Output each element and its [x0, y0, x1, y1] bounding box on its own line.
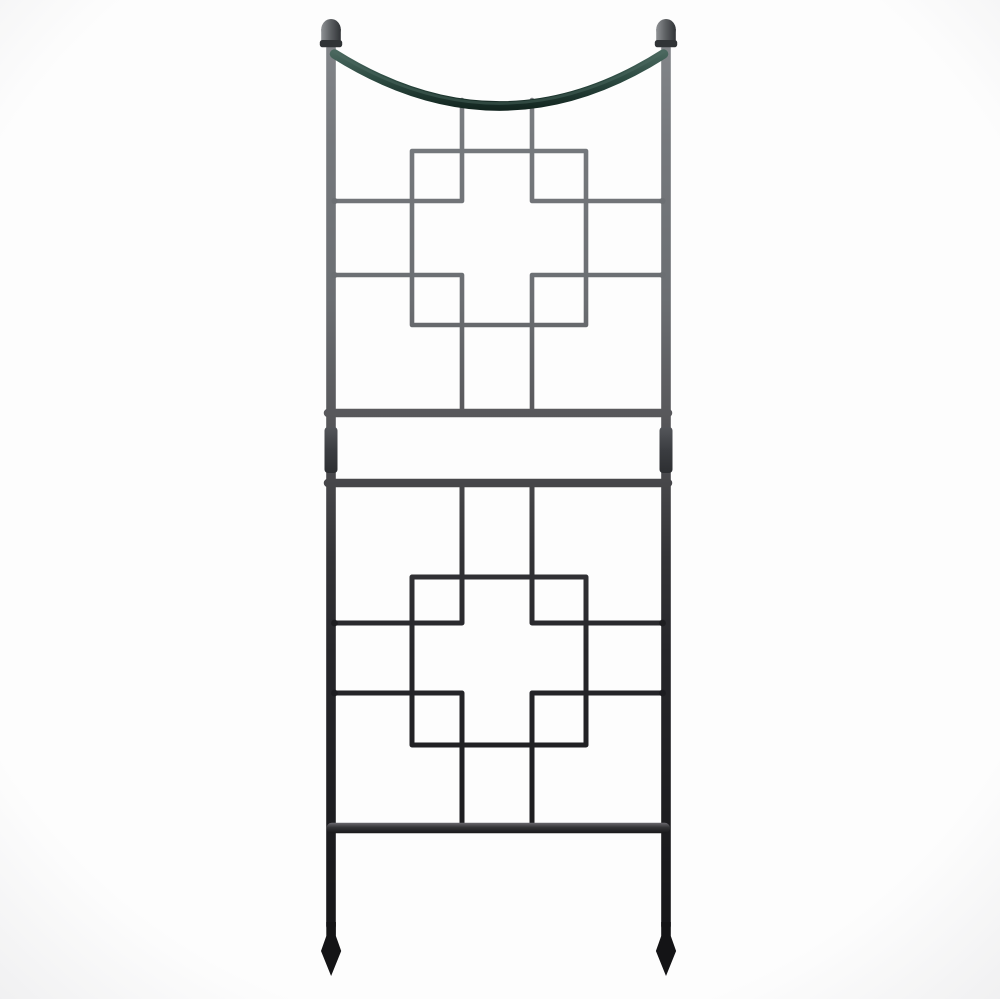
weld-lower-left-2	[331, 690, 338, 697]
weld-lower-right-1	[659, 620, 666, 627]
left-finial-dome	[321, 19, 341, 40]
left-post-coupler	[325, 427, 338, 473]
weld-lower-left-1	[331, 620, 338, 627]
left-finial-collar	[320, 40, 342, 47]
right-finial	[655, 19, 677, 47]
left-finial	[320, 19, 342, 47]
weld-upper-right-1	[659, 198, 665, 204]
weld-upper-right-2	[659, 272, 665, 278]
photo-stage: Graphite wrought-iron garden trellis pho…	[0, 0, 1000, 999]
right-post-coupler	[660, 427, 673, 473]
right-finial-dome	[656, 19, 676, 40]
weld-upper-left-2	[331, 272, 337, 278]
product-photo: Graphite wrought-iron garden trellis pho…	[0, 0, 1000, 999]
bottom-rail	[327, 823, 671, 833]
right-finial-collar	[655, 40, 677, 47]
trellis-illustration	[0, 0, 1000, 999]
weld-lower-right-2	[659, 690, 666, 697]
weld-upper-left-1	[331, 198, 337, 204]
